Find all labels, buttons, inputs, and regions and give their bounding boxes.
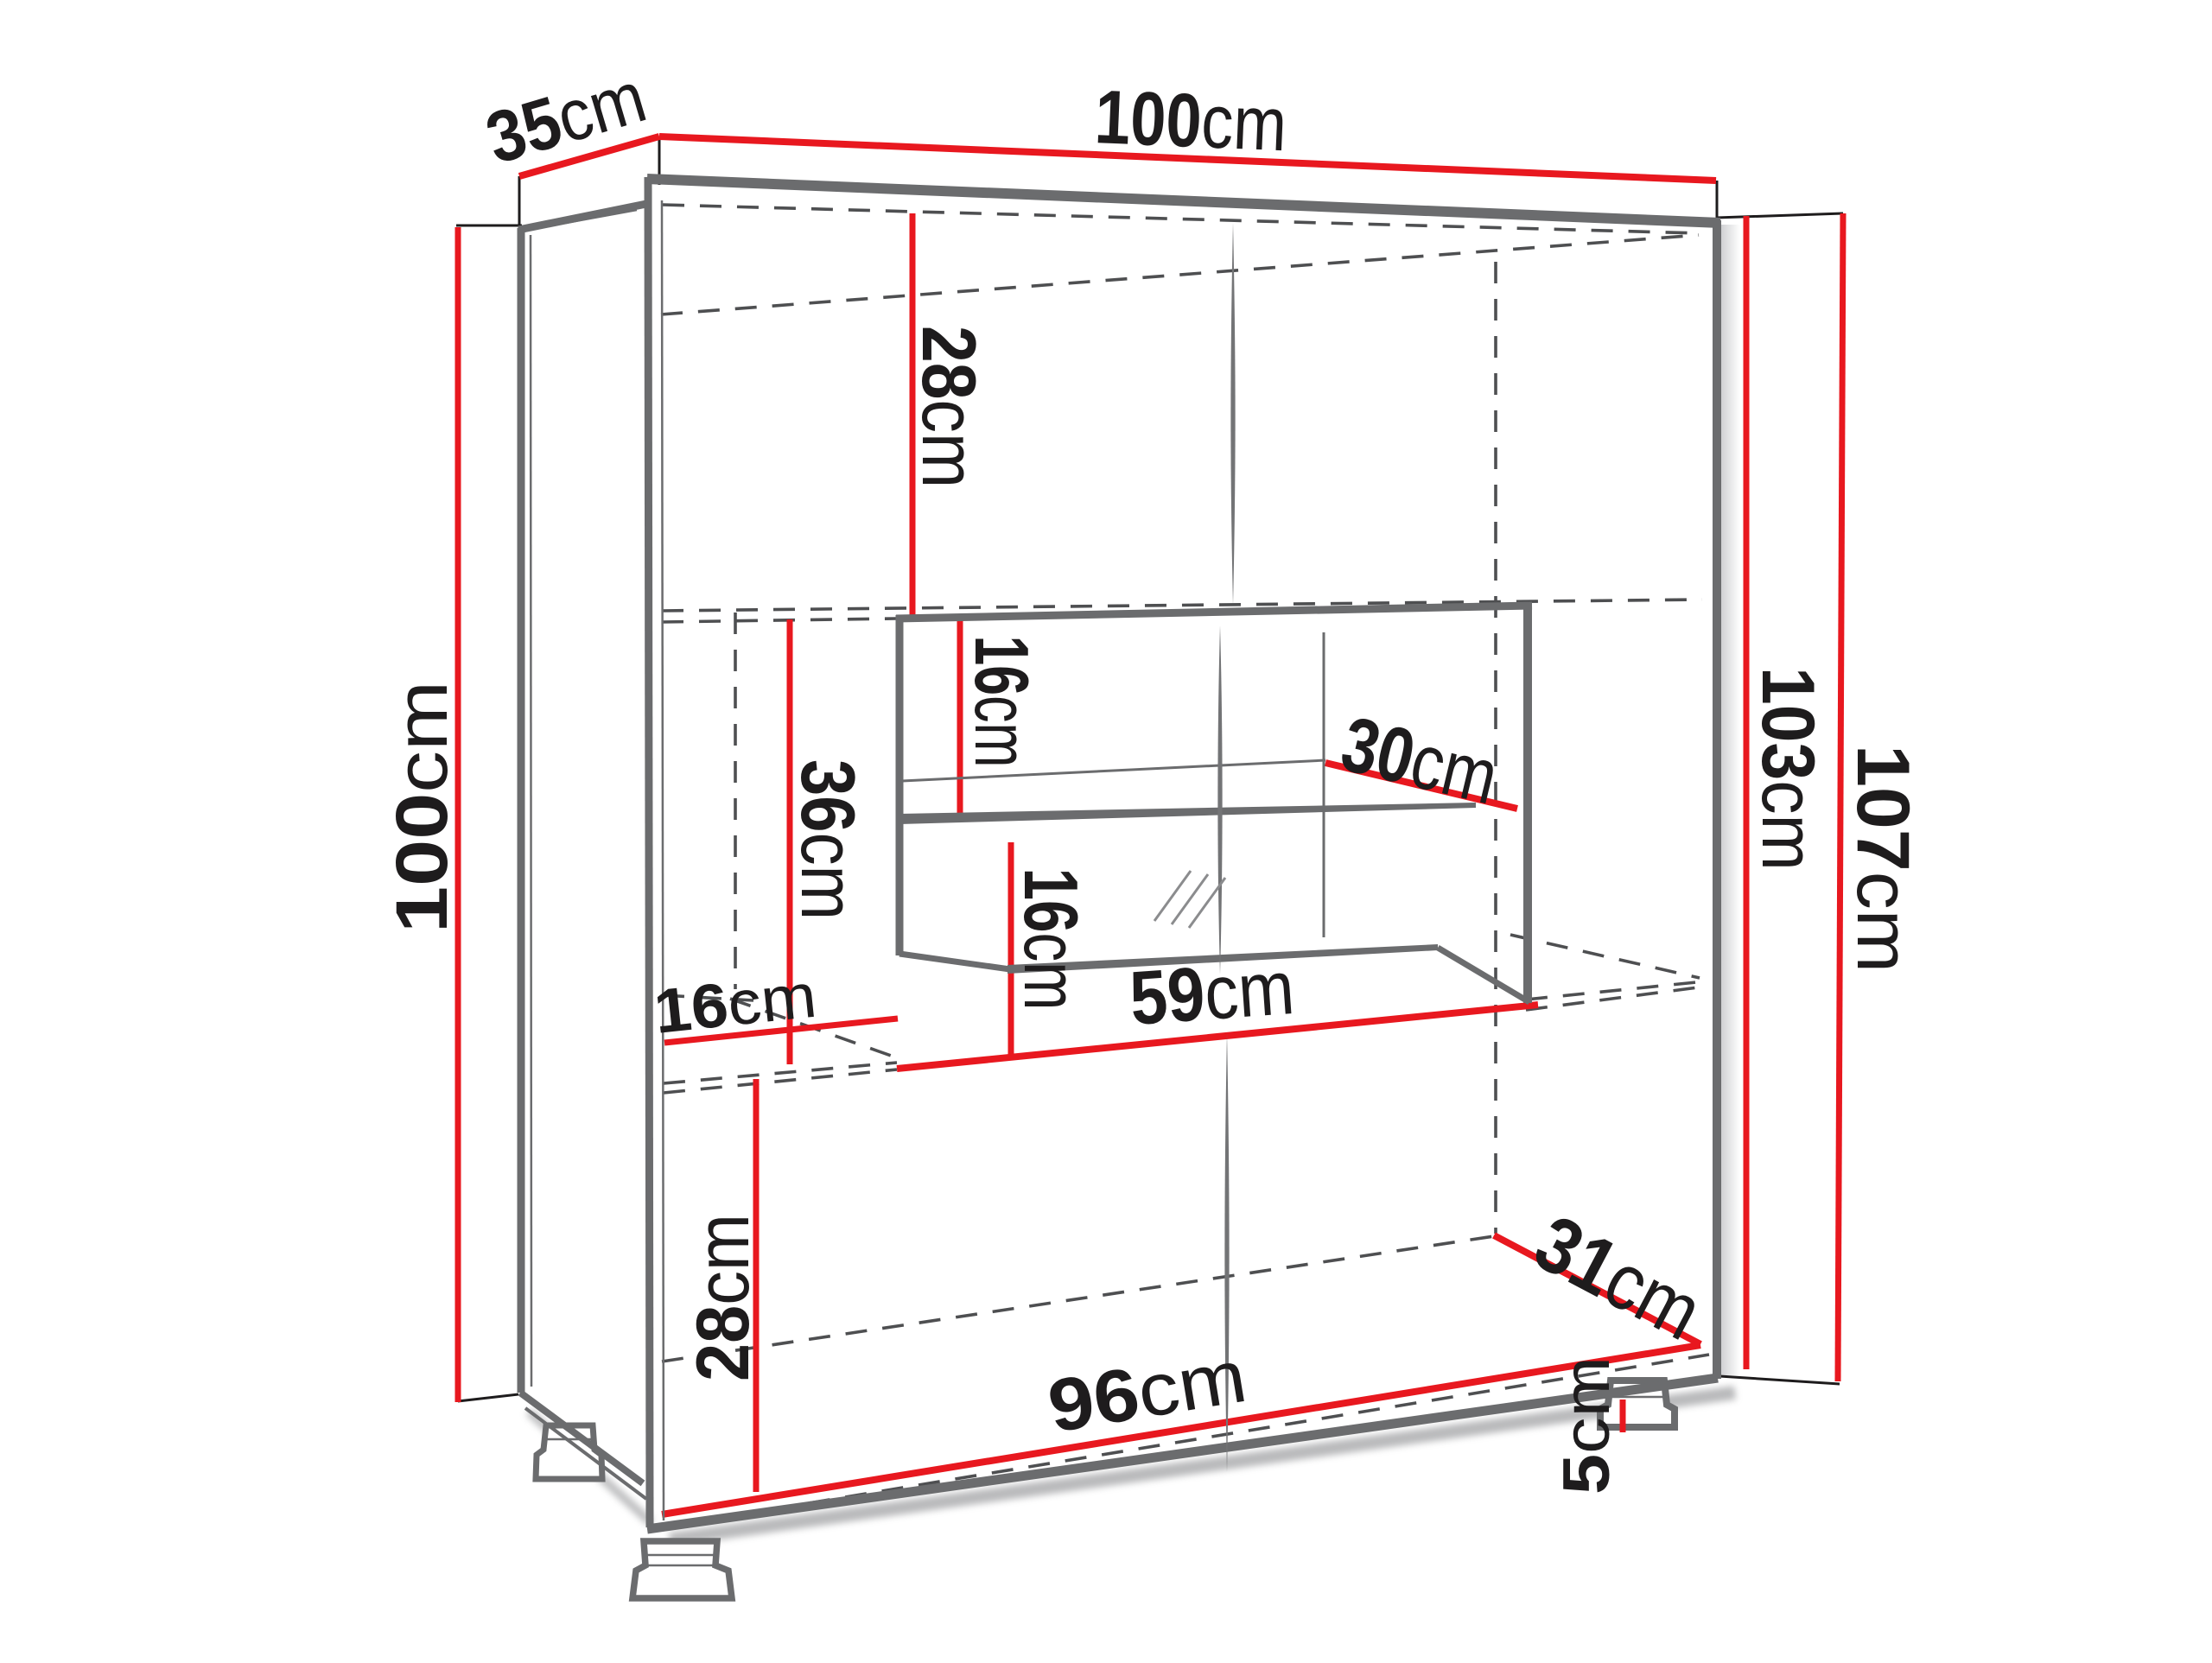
svg-text:100cm: 100cm (1093, 73, 1288, 167)
svg-text:107cm: 107cm (1841, 745, 1924, 973)
svg-text:36cm: 36cm (785, 759, 871, 920)
svg-text:28cm: 28cm (906, 326, 992, 488)
svg-text:59cm: 59cm (1127, 944, 1296, 1041)
svg-text:100cm: 100cm (381, 681, 462, 933)
svg-text:16cm: 16cm (1008, 868, 1094, 1011)
svg-text:28cm: 28cm (682, 1214, 765, 1381)
svg-text:103cm: 103cm (1746, 667, 1829, 871)
svg-text:5cm: 5cm (1550, 1356, 1624, 1495)
svg-text:16cm: 16cm (959, 636, 1045, 768)
